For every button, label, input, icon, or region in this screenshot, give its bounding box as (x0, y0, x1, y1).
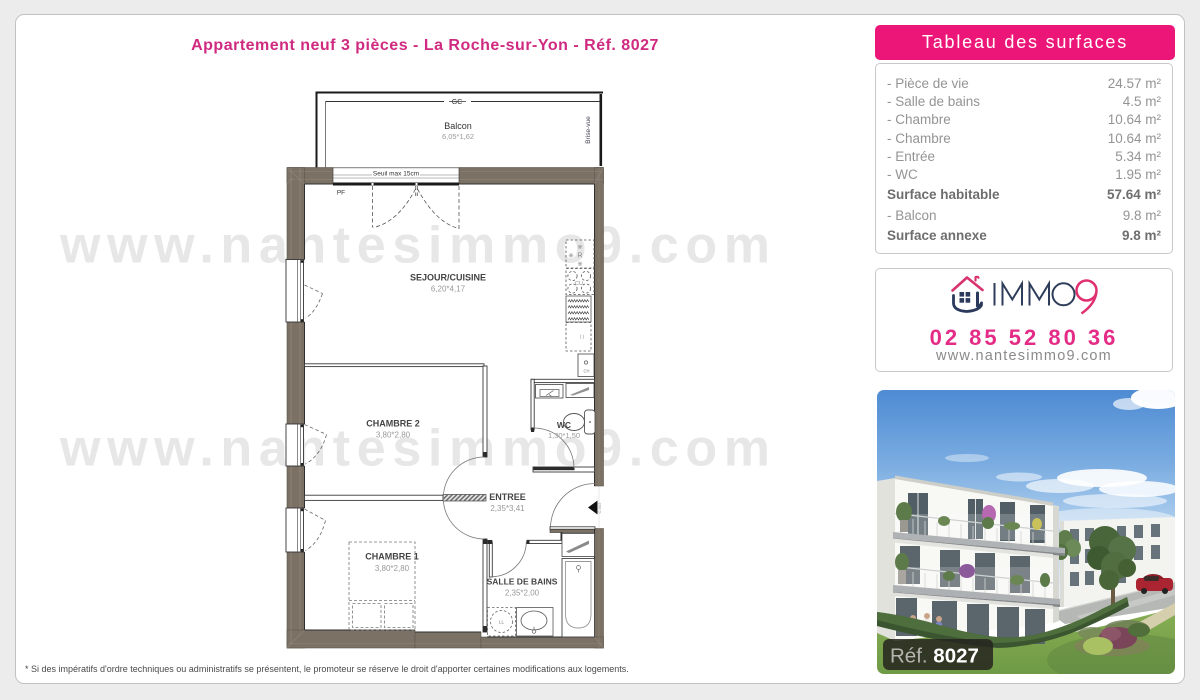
svg-text:6,05*1,62: 6,05*1,62 (442, 132, 474, 141)
svg-text:6,20*4,17: 6,20*4,17 (431, 285, 466, 294)
svg-text:( ): ( ) (580, 334, 585, 339)
svg-text:2,35*2,00: 2,35*2,00 (505, 589, 540, 598)
svg-text:Réf. 8027: Réf. 8027 (890, 644, 979, 667)
svg-text:Seuil max 15cm: Seuil max 15cm (373, 171, 419, 178)
svg-text:CH: CH (583, 369, 589, 374)
svg-text:PF: PF (337, 190, 345, 197)
svg-text:3,80*2,80: 3,80*2,80 (375, 564, 410, 573)
svg-text:SEJOUR/CUISINE: SEJOUR/CUISINE (410, 273, 486, 283)
svg-text:Balcon: Balcon (444, 121, 472, 131)
svg-text:Brise-vue: Brise-vue (585, 116, 592, 144)
svg-text:ENTREE: ENTREE (489, 492, 526, 502)
svg-text:CU: CU (575, 281, 583, 287)
svg-text:R: R (577, 253, 582, 260)
svg-text:CHAMBRE 2: CHAMBRE 2 (366, 419, 420, 429)
svg-text:C-002: C-002 (597, 502, 602, 514)
svg-text:❋: ❋ (577, 244, 582, 251)
svg-text:2,35*3,41: 2,35*3,41 (490, 504, 525, 513)
svg-text:WC: WC (557, 420, 571, 430)
svg-text:3,80*2,80: 3,80*2,80 (376, 431, 411, 440)
svg-text:❋: ❋ (568, 253, 573, 260)
svg-text:1,30*1,50: 1,30*1,50 (548, 431, 580, 440)
svg-text:GC: GC (452, 99, 463, 106)
svg-text:SALLE DE BAINS: SALLE DE BAINS (487, 577, 558, 587)
svg-text:LL: LL (499, 620, 505, 625)
svg-text:CHAMBRE 1: CHAMBRE 1 (365, 552, 419, 562)
svg-text:❋: ❋ (577, 261, 582, 268)
